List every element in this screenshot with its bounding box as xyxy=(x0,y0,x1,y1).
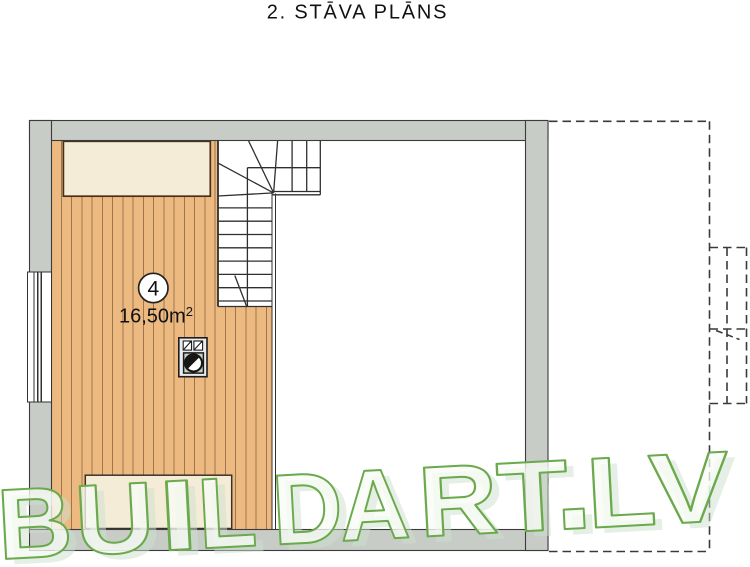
svg-text:4: 4 xyxy=(147,278,159,301)
svg-text:U: U xyxy=(72,461,157,567)
svg-text:2. STĀVA PLĀNS: 2. STĀVA PLĀNS xyxy=(267,1,449,24)
svg-text:I: I xyxy=(156,458,201,567)
svg-text:R: R xyxy=(416,443,501,559)
svg-text:V: V xyxy=(647,431,733,546)
svg-text:D: D xyxy=(269,451,345,566)
svg-text:A: A xyxy=(336,447,412,562)
svg-text:L: L xyxy=(195,456,259,567)
svg-text:B: B xyxy=(0,465,75,567)
svg-text:16,50m2: 16,50m2 xyxy=(119,304,193,328)
svg-text:T: T xyxy=(494,439,571,554)
